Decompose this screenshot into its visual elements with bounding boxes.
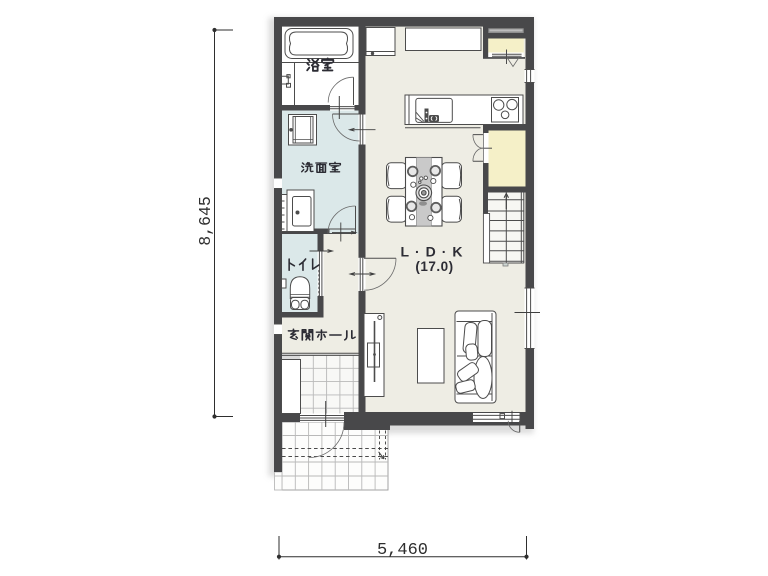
svg-text:5,460: 5,460	[377, 541, 428, 560]
svg-text:8,645: 8,645	[196, 196, 215, 246]
svg-text:L·D·K: L·D·K	[400, 244, 468, 260]
svg-text:(17.0): (17.0)	[415, 259, 453, 274]
